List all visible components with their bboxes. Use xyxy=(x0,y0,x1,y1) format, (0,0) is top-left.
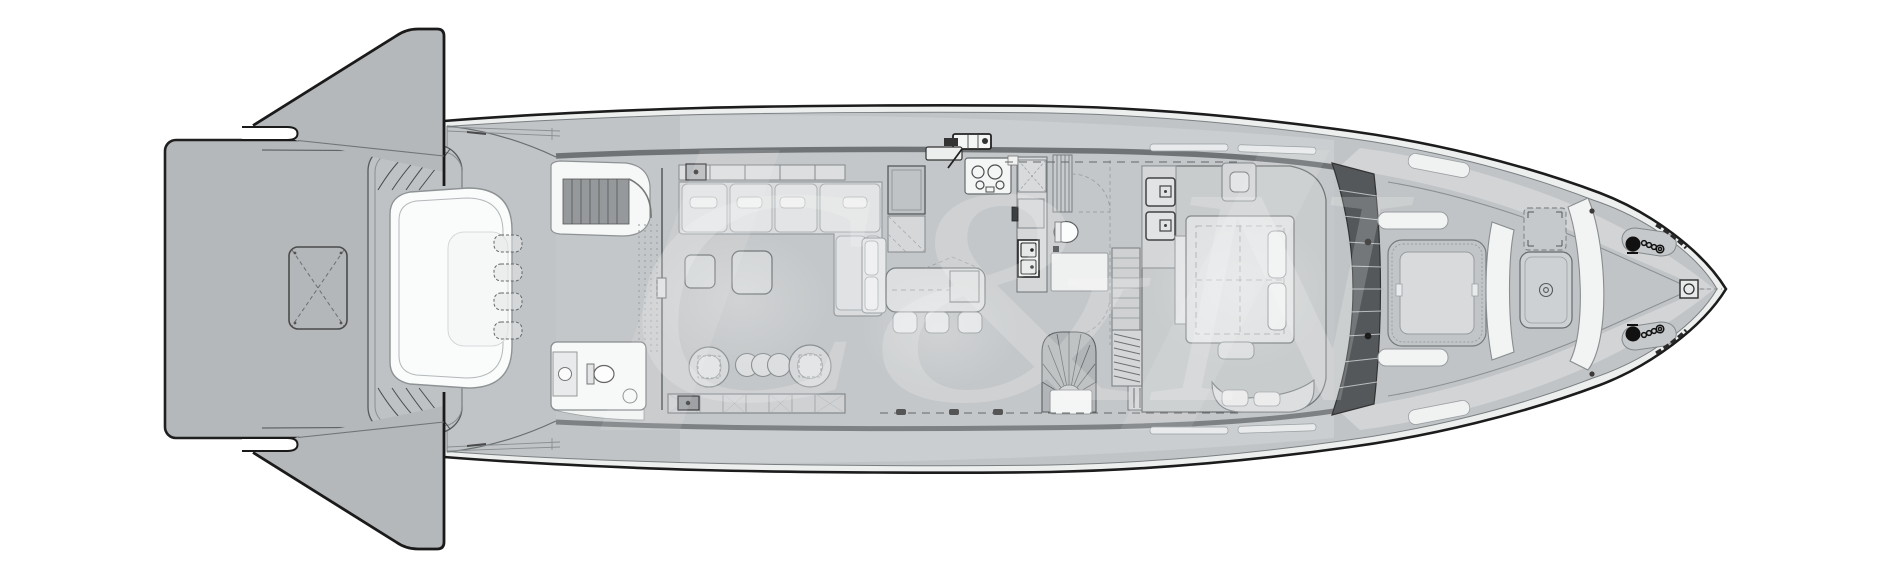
svg-text:C&N: C&N xyxy=(622,125,1416,468)
